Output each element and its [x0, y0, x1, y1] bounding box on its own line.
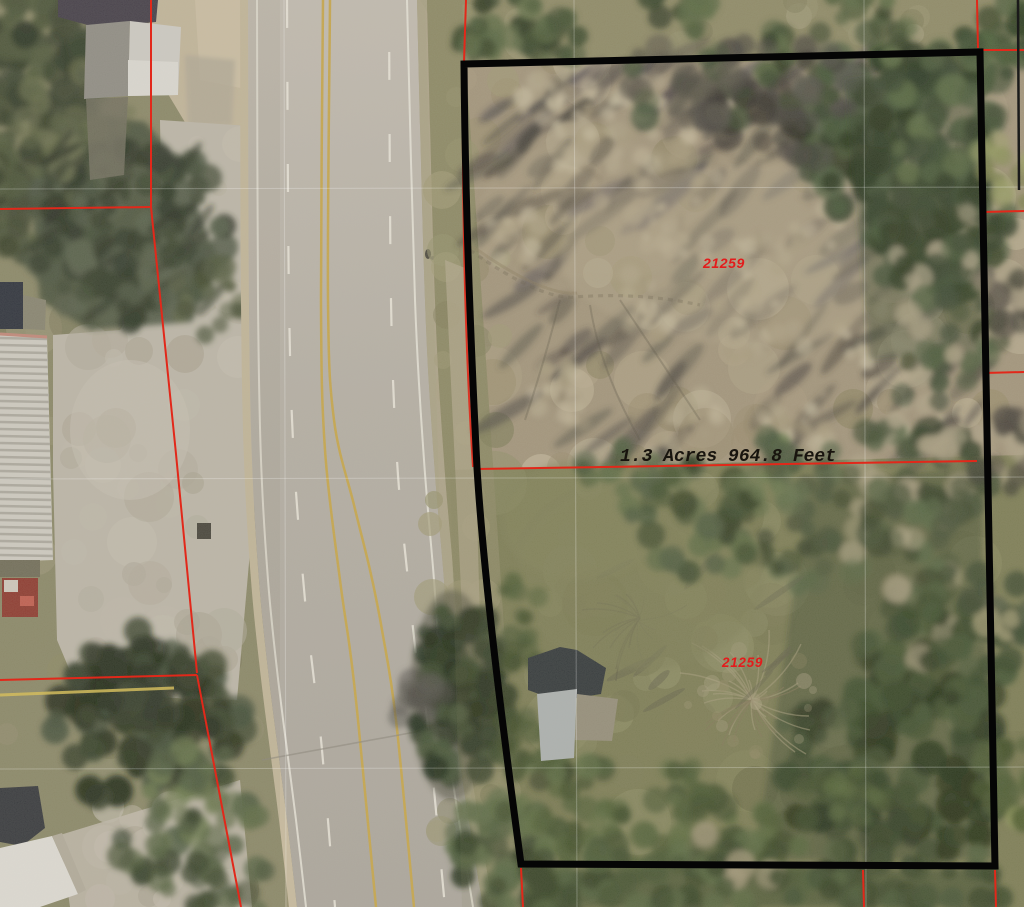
svg-text:21259: 21259 [721, 655, 763, 670]
svg-text:21259: 21259 [702, 255, 745, 271]
svg-text:1.3 Acres 964.8 Feet: 1.3 Acres 964.8 Feet [620, 447, 836, 467]
